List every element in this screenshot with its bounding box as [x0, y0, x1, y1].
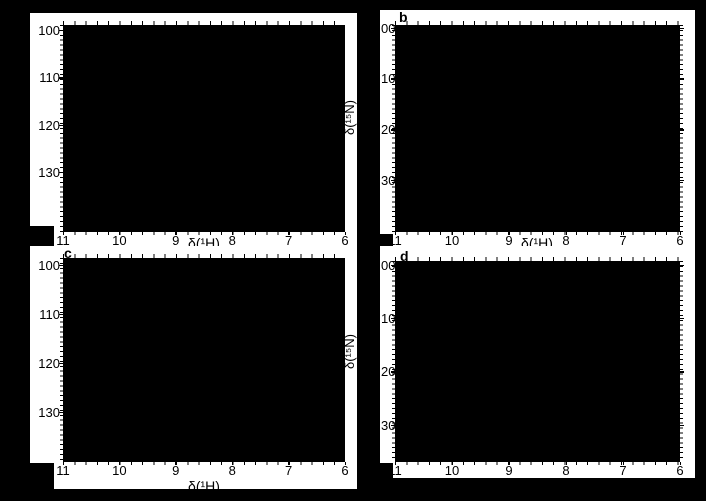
- y-major-tick: [59, 125, 63, 126]
- y-major-tick: [59, 265, 63, 266]
- x-minor-ticks-bottom: [395, 232, 680, 235]
- y-major-tick: [59, 363, 63, 364]
- x-minor-ticks-top: [63, 21, 345, 25]
- y-major-tick-right: [680, 425, 684, 426]
- y-major-tick: [391, 78, 395, 79]
- y-major-tick: [391, 371, 395, 372]
- y-major-tick: [391, 129, 395, 130]
- x-tick-label: 6: [676, 464, 683, 478]
- panel-d: d 1110987600102030: [380, 246, 695, 478]
- x-major-tick: [63, 462, 64, 465]
- x-major-tick: [288, 462, 289, 465]
- x-minor-ticks-bottom: [63, 232, 345, 235]
- y-tick-label: 120: [30, 119, 60, 133]
- y-major-tick-right: [680, 265, 684, 266]
- y-major-tick: [391, 265, 395, 266]
- x-major-tick: [232, 462, 233, 465]
- x-tick-label: 7: [619, 464, 626, 478]
- x-tick-label: 10: [112, 464, 126, 478]
- x-minor-ticks-top: [395, 21, 680, 25]
- y-minor-ticks-left: [60, 258, 63, 462]
- x-minor-ticks-top: [63, 254, 345, 258]
- x-major-tick: [452, 462, 453, 465]
- x-major-tick: [395, 232, 396, 235]
- y-major-tick-right: [680, 180, 684, 181]
- x-major-tick: [623, 462, 624, 465]
- x-major-tick: [345, 462, 346, 465]
- y-major-tick: [59, 30, 63, 31]
- x-major-tick: [623, 232, 624, 235]
- y-tick-label: 130: [30, 406, 60, 420]
- y-major-tick: [391, 318, 395, 319]
- x-tick-label: 8: [229, 464, 236, 478]
- x-major-tick: [288, 232, 289, 235]
- x-major-tick: [395, 462, 396, 465]
- x-tick-label: 10: [445, 464, 459, 478]
- y-axis-label-a: δ(¹⁵N): [342, 100, 357, 135]
- panel-c: c δ(¹H) δ(¹⁵N) 11109876100110120130: [30, 246, 357, 489]
- panel-b: b δ(¹H) 1110987600102030: [380, 10, 695, 252]
- figure-canvas: δ(¹H) δ(¹⁵N) 11109876100110120130 b δ(¹H…: [0, 0, 706, 501]
- x-tick-label: 8: [562, 464, 569, 478]
- y-tick-label: 110: [30, 71, 60, 85]
- y-tick-label: 120: [30, 357, 60, 371]
- plot-area-d: [395, 261, 680, 462]
- x-major-tick: [345, 232, 346, 235]
- x-major-tick: [680, 232, 681, 235]
- plot-area-b: [395, 25, 680, 232]
- y-tick-label: 100: [30, 259, 60, 273]
- clipped-corner-c: [30, 463, 54, 489]
- y-major-tick-right: [680, 129, 684, 130]
- y-major-tick: [391, 425, 395, 426]
- x-tick-label: 9: [505, 464, 512, 478]
- x-major-tick: [232, 232, 233, 235]
- y-major-tick: [59, 77, 63, 78]
- y-tick-label: 110: [30, 308, 60, 322]
- y-minor-ticks-right: [680, 261, 683, 462]
- x-minor-ticks-bottom: [395, 462, 680, 465]
- y-tick-label: 130: [30, 166, 60, 180]
- x-major-tick: [452, 232, 453, 235]
- x-tick-label: 9: [172, 464, 179, 478]
- x-tick-label: 11: [56, 464, 70, 478]
- x-major-tick: [566, 232, 567, 235]
- y-axis-label-c: δ(¹⁵N): [342, 334, 357, 369]
- x-axis-label-c: δ(¹H): [188, 478, 220, 489]
- x-major-tick: [680, 462, 681, 465]
- y-major-tick-right: [680, 318, 684, 319]
- x-tick-label: 6: [341, 464, 348, 478]
- y-minor-ticks-left: [60, 25, 63, 232]
- x-tick-label: 11: [388, 464, 402, 478]
- x-major-tick: [119, 232, 120, 235]
- x-major-tick: [175, 462, 176, 465]
- x-major-tick: [509, 462, 510, 465]
- y-major-tick: [391, 28, 395, 29]
- x-tick-label: 7: [285, 464, 292, 478]
- y-tick-label: 100: [30, 24, 60, 38]
- x-major-tick: [566, 462, 567, 465]
- y-major-tick-right: [680, 371, 684, 372]
- y-major-tick: [59, 172, 63, 173]
- x-major-tick: [175, 232, 176, 235]
- plot-area-a: [63, 25, 345, 232]
- y-major-tick: [59, 314, 63, 315]
- plot-area-c: [63, 258, 345, 462]
- y-major-tick: [59, 412, 63, 413]
- y-major-tick-right: [680, 28, 684, 29]
- y-major-tick-right: [680, 78, 684, 79]
- x-major-tick: [509, 232, 510, 235]
- x-minor-ticks-top: [395, 257, 680, 261]
- y-major-tick: [391, 180, 395, 181]
- x-major-tick: [63, 232, 64, 235]
- x-major-tick: [119, 462, 120, 465]
- x-minor-ticks-bottom: [63, 462, 345, 465]
- panel-a: δ(¹H) δ(¹⁵N) 11109876100110120130: [30, 13, 357, 252]
